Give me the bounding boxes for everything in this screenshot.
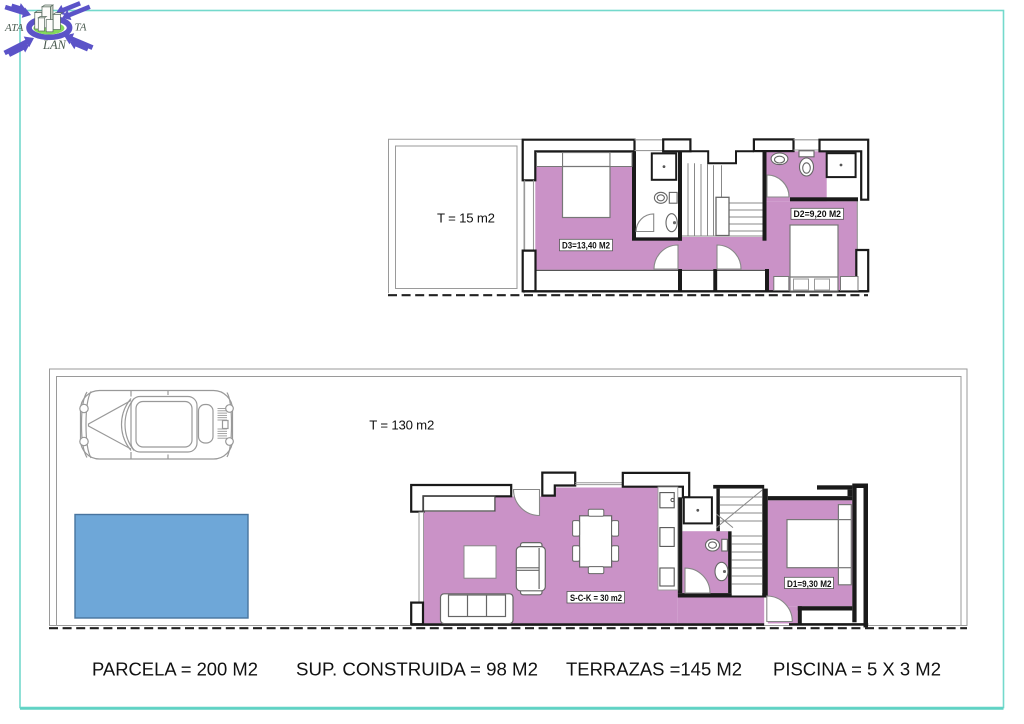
svg-text:S-C-K = 30 m2: S-C-K = 30 m2 xyxy=(570,593,622,603)
svg-text:D2=9,20 M2: D2=9,20 M2 xyxy=(794,209,842,219)
svg-text:TA: TA xyxy=(75,21,87,33)
svg-text:TERRAZAS =145 M2: TERRAZAS =145 M2 xyxy=(566,659,742,680)
svg-text:T = 15 m2: T = 15 m2 xyxy=(437,211,495,226)
svg-text:LAN: LAN xyxy=(42,38,67,52)
svg-text:T = 130 m2: T = 130 m2 xyxy=(369,418,434,433)
svg-text:PARCELA = 200 M2: PARCELA = 200 M2 xyxy=(92,659,258,680)
svg-text:D1=9,30 M2: D1=9,30 M2 xyxy=(787,579,832,589)
svg-text:ATA: ATA xyxy=(4,22,24,34)
svg-text:PISCINA = 5 X 3 M2: PISCINA = 5 X 3 M2 xyxy=(773,659,941,680)
svg-text:D3=13,40 M2: D3=13,40 M2 xyxy=(562,240,610,250)
svg-text:SUP. CONSTRUIDA = 98 M2: SUP. CONSTRUIDA = 98 M2 xyxy=(296,659,538,680)
